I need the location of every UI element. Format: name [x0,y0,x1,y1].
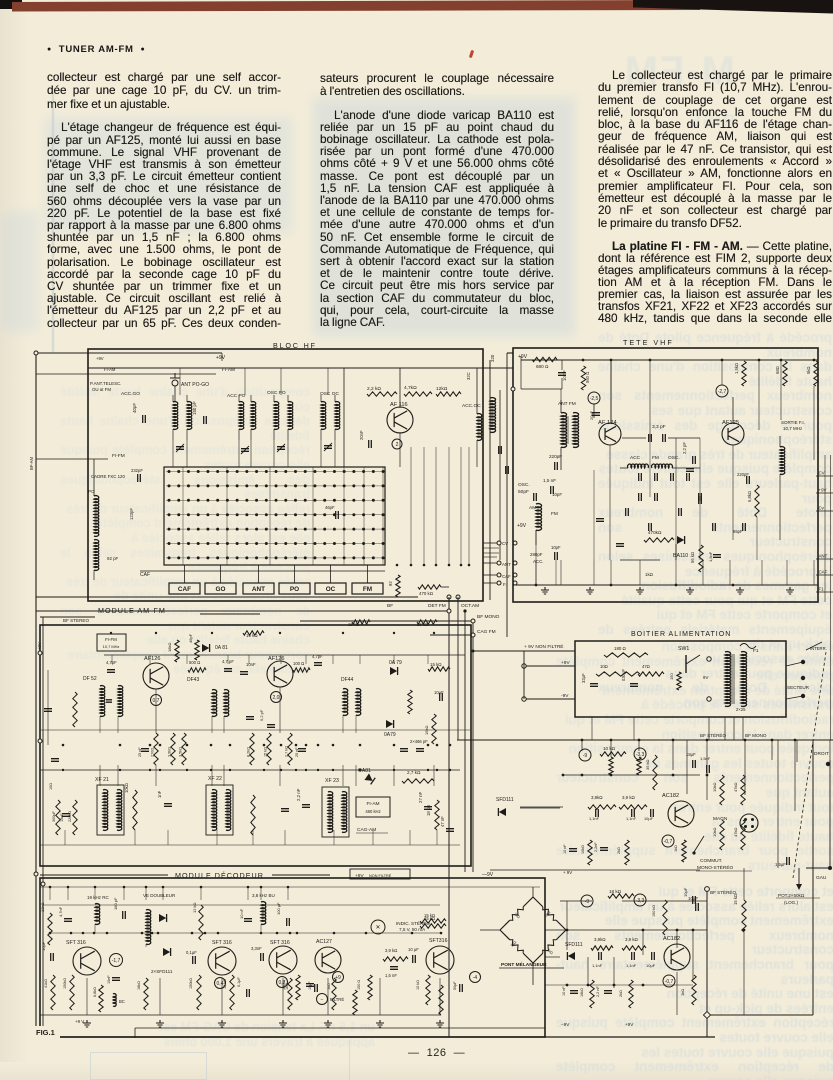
svg-text:47 nF: 47 nF [440,816,445,827]
svg-text:16kΩ: 16kΩ [580,988,584,997]
svg-text:CAF: CAF [140,572,150,578]
svg-text:ACC: ACC [630,455,641,461]
svg-text:FM: FM [652,455,659,461]
svg-text:3,9 kΩ: 3,9 kΩ [625,937,639,942]
svg-text:18kΩ: 18kΩ [167,643,172,652]
svg-text:FI-AM: FI-AM [104,367,116,372]
svg-text:SFD111: SFD111 [496,797,514,803]
svg-text:10 μF: 10 μF [408,947,419,952]
svg-text:12kΩ: 12kΩ [436,386,448,392]
svg-text:1kΩ: 1kΩ [546,948,554,956]
svg-text:2,0: 2,0 [273,695,280,701]
svg-text:+ 9V NON FILTRÉ: + 9V NON FILTRÉ [524,643,564,650]
svg-text:(LOG.): (LOG.) [784,900,799,905]
svg-text:TETE VHF: TETE VHF [623,338,674,347]
svg-text:MODULE AM-FM: MODULE AM-FM [98,606,166,615]
svg-text:65pF: 65pF [733,529,743,534]
svg-text:150 pF: 150 pF [192,401,197,415]
svg-text:AF126: AF126 [144,656,160,662]
svg-text:+9V: +9V [216,355,226,361]
svg-text:+9V: +9V [819,488,827,493]
svg-text:CAF: CAF [819,570,828,575]
svg-text:320: 320 [490,354,495,362]
svg-text:68Ω: 68Ω [775,366,780,374]
svg-text:4,7nF: 4,7nF [58,906,63,917]
svg-text:CADRE FXC 120: CADRE FXC 120 [91,474,125,479]
svg-text:1kΩ: 1kΩ [674,845,678,852]
svg-text:2×466 pF: 2×466 pF [410,739,428,744]
svg-text:1kΩ: 1kΩ [510,940,518,948]
svg-text:10kΩ: 10kΩ [581,845,585,854]
svg-text:OSC.: OSC. [668,455,680,461]
svg-text:50μF: 50μF [453,981,457,990]
svg-text:AM: AM [529,505,536,511]
svg-text:10Ω: 10Ω [600,664,608,669]
svg-text:OSC PO: OSC PO [267,390,286,396]
svg-text:0,1μF: 0,1μF [237,977,241,987]
svg-text:32μF: 32μF [581,673,586,683]
svg-text:FI-AM: FI-AM [366,801,379,807]
svg-text:10μF: 10μF [644,816,654,821]
svg-text:8,2kΩ: 8,2kΩ [247,747,251,757]
svg-text:150kΩ: 150kΩ [189,978,193,989]
svg-text:40pF: 40pF [132,403,137,413]
svg-text:XF 21: XF 21 [95,777,109,783]
svg-text:0A 81: 0A 81 [215,645,228,651]
svg-text:SFT 316: SFT 316 [66,940,86,946]
svg-text:470kΩ: 470kΩ [648,530,662,535]
svg-text:10 kΩ: 10 kΩ [603,746,616,751]
svg-text:OSC OC: OSC OC [320,391,339,397]
svg-text:1kΩ: 1kΩ [680,989,685,996]
svg-text:10 nF: 10 nF [563,844,567,854]
svg-text:180 Ω: 180 Ω [614,646,627,651]
svg-text:10Ω: 10Ω [49,783,53,790]
svg-text:300μF: 300μF [52,810,56,822]
svg-text:46pF: 46pF [325,505,335,510]
svg-text:32C: 32C [466,372,471,380]
svg-text:+9V: +9V [625,1022,634,1027]
svg-text:-9V: -9V [561,693,569,699]
svg-text:SFT 316: SFT 316 [212,940,232,946]
svg-text:3,9 kΩ: 3,9 kΩ [385,948,397,953]
svg-text:F.I: F.I [503,582,508,587]
svg-text:4,7kΩ: 4,7kΩ [404,385,417,391]
svg-text:+9V: +9V [96,356,104,361]
svg-text:✕: ✕ [375,925,380,931]
svg-text:10 nF: 10 nF [562,986,566,996]
svg-text:CAG-AM: CAG-AM [357,827,376,833]
svg-text:CAG FM: CAG FM [477,629,496,635]
svg-text:+9V: +9V [561,660,570,666]
svg-text:18 kΩ: 18 kΩ [609,889,622,894]
svg-text:AC182: AC182 [662,793,679,799]
svg-text:MAGN: MAGN [713,816,728,822]
svg-text:-1,7: -1,7 [112,958,121,964]
svg-text:4,7pF: 4,7pF [106,660,117,665]
svg-text:2,7 kΩ: 2,7 kΩ [285,746,289,757]
svg-text:DF44: DF44 [341,677,353,683]
svg-text:2,2 kΩ: 2,2 kΩ [367,386,381,392]
svg-text:10,7 MHz: 10,7 MHz [783,426,803,431]
svg-text:19 kHz RC: 19 kHz RC [87,895,110,900]
svg-text:FILTRÉ: FILTRÉ [330,997,344,1002]
svg-text:—9V: —9V [482,872,494,878]
svg-text:P.ANT.TELESC.: P.ANT.TELESC. [90,381,121,386]
svg-text:10nF: 10nF [107,975,111,984]
svg-text:3,3 pF: 3,3 pF [652,424,666,430]
svg-text:BF MONO: BF MONO [477,614,500,620]
svg-text:3,9 kΩ: 3,9 kΩ [622,795,636,800]
svg-text:15 kΩ: 15 kΩ [733,894,738,905]
svg-text:15 kΩ: 15 kΩ [264,747,268,757]
svg-text:DF 52: DF 52 [83,676,97,682]
svg-text:270Ω: 270Ω [151,748,155,757]
svg-text:CAF: CAF [178,586,191,593]
svg-text:500 Ω: 500 Ω [189,660,200,665]
svg-text:OU at FM: OU at FM [92,387,111,392]
svg-text:10 kΩ: 10 kΩ [416,980,420,990]
svg-text:BF: BF [387,603,393,609]
svg-text:232pF: 232pF [131,468,143,473]
svg-text:150kΩ: 150kΩ [63,978,67,989]
svg-text:2×25: 2×25 [736,707,746,712]
svg-text:CAF: CAF [502,574,511,579]
svg-text:AC182: AC182 [663,936,680,942]
svg-text:CV: CV [502,541,508,546]
svg-text:BC: BC [119,999,125,1004]
svg-text:−: − [321,997,324,1003]
svg-text:OC: OC [326,586,336,593]
svg-text:10 kΩ: 10 kΩ [246,633,258,638]
svg-text:+9V: +9V [355,873,364,879]
svg-text:41kΩ: 41kΩ [44,979,48,988]
svg-text:56 kΩ: 56 kΩ [690,552,695,563]
svg-text:ANT: ANT [502,562,511,567]
svg-text:SFD111: SFD111 [565,942,583,948]
svg-text:ACC.OC: ACC.OC [462,403,481,409]
svg-text:BF STÉRÉO: BF STÉRÉO [700,732,726,738]
svg-text:1kΩ: 1kΩ [513,912,521,920]
svg-text:3,5kΩ: 3,5kΩ [179,747,183,757]
svg-text:2kΩ: 2kΩ [617,847,621,854]
svg-text:SORTIE F.I.: SORTIE F.I. [781,420,805,425]
svg-text:BF MONO: BF MONO [745,733,767,738]
svg-text:480 kHz: 480 kHz [365,809,380,814]
svg-text:10 nF: 10 nF [239,908,244,919]
svg-text:12 kΩ: 12 kΩ [192,902,197,913]
svg-text:220pF: 220pF [737,472,749,477]
svg-text:1kΩ: 1kΩ [645,572,654,577]
svg-text:FM: FM [551,511,558,517]
svg-text:12kΩ: 12kΩ [40,903,45,912]
svg-text:1,1nF: 1,1nF [592,963,603,968]
svg-text:MODULE DÉCODEUR: MODULE DÉCODEUR [175,871,264,880]
svg-text:5,2 pF: 5,2 pF [259,709,264,721]
svg-text:Cv: Cv [819,506,825,511]
svg-text:25 nF: 25 nF [138,747,142,757]
svg-text:1,5kΩ: 1,5kΩ [734,363,739,374]
svg-text:ANT: ANT [252,586,265,593]
svg-text:280pF: 280pF [530,552,543,557]
svg-text:-9: -9 [585,899,590,905]
svg-text:ACC.: ACC. [533,559,544,564]
svg-text:2: 2 [396,442,399,448]
svg-text:123pF: 123pF [129,508,134,520]
svg-text:XF 23: XF 23 [325,778,339,784]
svg-text:1,5μF: 1,5μF [775,862,786,867]
svg-text:10,7 MHz: 10,7 MHz [103,644,120,649]
svg-text:DF43: DF43 [187,677,199,683]
svg-text:-0,7: -0,7 [665,979,674,985]
svg-text:92 pF: 92 pF [107,556,119,561]
svg-text:20nF: 20nF [359,430,364,440]
svg-text:COMMUT.: COMMUT. [700,858,722,864]
svg-text:180 pF: 180 pF [113,897,118,910]
svg-text:SFT316: SFT316 [429,938,448,944]
svg-text:92: 92 [388,581,393,586]
svg-text:GO: GO [216,586,226,593]
svg-text:0,1μF: 0,1μF [186,950,197,955]
svg-text:1,5nF: 1,5nF [708,551,713,562]
svg-text:FIG.1: FIG.1 [36,1028,55,1037]
svg-text:220pF: 220pF [549,454,562,459]
svg-text:0A 79: 0A 79 [389,660,402,666]
svg-text:SECTEUR: SECTEUR [787,685,810,690]
svg-text:+ 9V: + 9V [563,870,572,875]
svg-text:27 nF: 27 nF [418,791,423,803]
svg-text:SW1: SW1 [678,646,689,652]
svg-text:BF-AM: BF-AM [29,456,34,470]
svg-text:NON FILTRÉ: NON FILTRÉ [369,873,392,878]
svg-text:2,2 pF: 2,2 pF [682,442,687,454]
svg-text:1kΩ: 1kΩ [327,983,331,990]
svg-text:1,5nF: 1,5nF [700,756,711,761]
svg-text:2×SFD111: 2×SFD111 [151,969,173,974]
svg-text:10μF: 10μF [646,963,656,968]
svg-text:50pF: 50pF [518,489,529,495]
svg-text:2kΩ: 2kΩ [619,990,623,997]
svg-text:GAU: GAU [816,875,827,881]
svg-text:BF STEREO: BF STEREO [63,618,89,623]
svg-text:6,8kΩ: 6,8kΩ [747,491,752,502]
svg-text:CV: CV [819,471,825,476]
svg-text:470 kΩ: 470 kΩ [419,591,434,596]
svg-text:12 kΩ: 12 kΩ [223,979,227,989]
svg-text:1,5 nF: 1,5 nF [385,973,397,978]
svg-text:3,9kΩ: 3,9kΩ [591,795,603,800]
svg-text:3,9kΩ: 3,9kΩ [168,747,172,757]
svg-text:1kΩ: 1kΩ [285,983,289,990]
svg-text:ANT: ANT [819,554,828,559]
svg-text:2,2 nF: 2,2 nF [596,986,600,997]
svg-text:35 kΩ: 35 kΩ [645,759,650,770]
svg-text:DET FM: DET FM [428,603,446,609]
svg-text:2,2 nF: 2,2 nF [296,788,301,801]
svg-text:18kΩ: 18kΩ [137,981,141,990]
svg-text:3,8 kHz BU: 3,8 kHz BU [252,893,275,898]
svg-text:47kΩ: 47kΩ [733,783,738,792]
svg-text:10μF: 10μF [41,941,46,951]
svg-text:OCT.AM: OCT.AM [461,603,479,609]
svg-text:BA110: BA110 [673,553,688,559]
svg-text:150 Ω: 150 Ω [357,980,361,990]
svg-text:VE DOUBLEUR: VE DOUBLEUR [143,893,176,898]
svg-text:3,3nF: 3,3nF [251,946,262,951]
svg-text:-3,3: -3,3 [636,752,645,758]
svg-text:-9: -9 [583,753,588,759]
svg-text:+9V: +9V [517,523,527,529]
svg-text:100 μF: 100 μF [276,902,281,915]
svg-text:SFT 316: SFT 316 [270,940,290,946]
svg-text:ANT PO-GO: ANT PO-GO [181,382,209,388]
svg-text:MONO-STÉRÉO: MONO-STÉRÉO [697,864,734,871]
svg-text:−9V: −9V [561,1022,570,1027]
svg-text:46pF: 46pF [188,633,193,643]
svg-text:INTERR.: INTERR. [810,646,827,651]
svg-text:100 Ω: 100 Ω [293,661,304,666]
svg-text:POT.2×50kΩ: POT.2×50kΩ [778,893,805,898]
svg-text:10kΩ: 10kΩ [712,783,717,792]
svg-text:10μF: 10μF [308,981,312,990]
svg-text:XF 22: XF 22 [208,776,222,782]
svg-text:ACC.GO: ACC.GO [121,391,140,397]
svg-text:5kΩ: 5kΩ [806,366,811,374]
svg-text:FI-FM: FI-FM [105,637,117,642]
svg-text:-2,7: -2,7 [718,389,727,395]
svg-text:47kΩ: 47kΩ [733,828,738,837]
svg-text:+9V: +9V [37,642,42,650]
svg-text:2,2nF: 2,2nF [594,842,598,852]
svg-text:6,8kΩ: 6,8kΩ [93,987,97,997]
svg-text:1,1nF: 1,1nF [626,963,637,968]
svg-text:15 kΩ: 15 kΩ [424,916,435,921]
svg-text:150 kΩ: 150 kΩ [652,905,656,917]
svg-text:10kΩ: 10kΩ [124,783,129,793]
svg-text:1nF: 1nF [157,790,162,798]
svg-text:F1: F1 [753,648,759,654]
svg-text:10pF: 10pF [551,545,561,550]
svg-text:680 Ω: 680 Ω [536,364,549,369]
svg-text:18μF: 18μF [686,752,696,757]
svg-text:-0,7: -0,7 [664,839,673,845]
svg-text:10nF: 10nF [246,662,256,667]
svg-text:2,7 kΩ: 2,7 kΩ [407,770,421,775]
svg-text:BOITIER ALIMENTATION: BOITIER ALIMENTATION [631,631,731,638]
svg-text:47Ω: 47Ω [642,664,650,669]
svg-text:1,5 nF: 1,5 nF [543,478,556,483]
svg-text:+9V: +9V [518,354,528,360]
svg-text:AC127: AC127 [316,939,332,945]
svg-text:25 nF: 25 nF [295,747,299,757]
svg-text:+9 V: +9 V [75,1019,84,1024]
svg-text:OSC.: OSC. [518,482,530,488]
svg-text:150: 150 [669,673,674,680]
svg-text:ACC PO: ACC PO [227,393,246,399]
svg-text:0A79: 0A79 [384,732,396,738]
svg-text:BLOC HF: BLOC HF [273,341,317,350]
svg-text:F1: F1 [819,587,825,592]
svg-text:9V: 9V [703,675,708,680]
svg-text:18 kΩ: 18 kΩ [426,805,431,816]
svg-text:10μF: 10μF [683,887,688,897]
svg-text:-2,5: -2,5 [590,396,599,402]
svg-text:DROIT: DROIT [814,751,829,757]
svg-text:3,9kΩ: 3,9kΩ [594,937,606,942]
svg-text:FI-FM: FI-FM [112,453,125,459]
svg-text:10kΩ: 10kΩ [712,828,717,837]
svg-text:10pF: 10pF [552,492,562,497]
svg-text:PO: PO [290,586,299,593]
svg-text:15 kΩ: 15 kΩ [430,662,442,667]
svg-text:FM: FM [363,586,372,593]
svg-text:PONT MÉLANGEUR: PONT MÉLANGEUR [501,960,547,968]
svg-text:-4: -4 [473,975,478,981]
